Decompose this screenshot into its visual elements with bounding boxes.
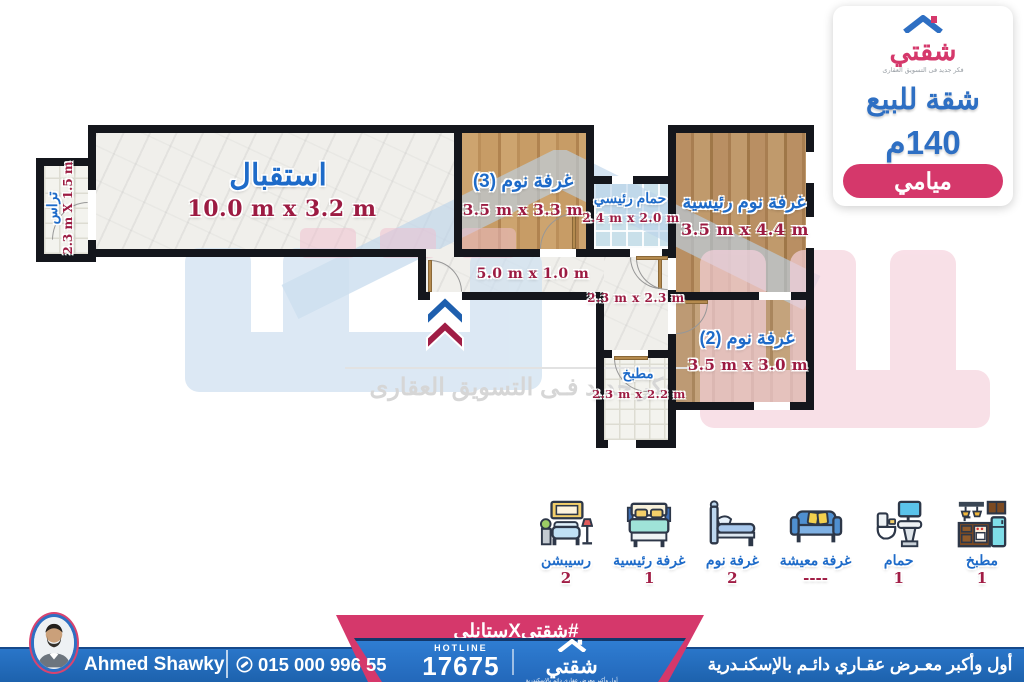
hotline-block: HOTLINE 17675 xyxy=(422,644,499,679)
room-name: غرفة نوم (2) xyxy=(699,328,794,349)
window-gap xyxy=(757,292,793,300)
poster-page: فكر جديد فـى التسويق العقارى xyxy=(0,0,1024,682)
legend-label: حمام xyxy=(861,552,937,569)
wall xyxy=(88,249,418,257)
legend-label: غرفة نوم xyxy=(694,552,770,569)
room-dims: 2.3 m X 1.5 m xyxy=(61,148,75,268)
legend-label: غرفة رئيسية xyxy=(611,552,687,569)
single-bed-icon xyxy=(705,498,759,552)
legend-count: 1 xyxy=(944,569,1020,587)
location-badge: ميامي xyxy=(843,164,1003,198)
wall xyxy=(454,125,594,133)
room-name: استقبال xyxy=(229,158,327,193)
room-dims: 2.4 m x 2.0 m xyxy=(582,211,680,225)
wall xyxy=(36,158,44,262)
divider xyxy=(512,649,514,675)
door-gap xyxy=(668,302,676,334)
wall xyxy=(454,125,462,257)
house-roof-icon xyxy=(555,639,589,652)
window-gap xyxy=(806,150,814,185)
window-gap xyxy=(610,176,635,184)
door-gap xyxy=(88,190,96,240)
room-name: مطبخ xyxy=(622,366,653,382)
entrance-arrow-icon xyxy=(426,296,464,356)
door-leaf xyxy=(636,256,668,260)
door-leaf xyxy=(428,260,432,292)
legend-count: 2 xyxy=(528,569,604,587)
room-name: حمام رئيسي xyxy=(594,190,667,207)
legend-item-bedroom: غرفة نوم 2 xyxy=(694,498,770,587)
hotline-number: 17675 xyxy=(422,653,499,679)
house-roof-icon xyxy=(900,15,946,33)
wall xyxy=(668,402,814,410)
legend-item-living-room: غرفة معيشة ---- xyxy=(778,498,854,587)
legend-item-bathroom: حمام 1 xyxy=(861,498,937,587)
info-card: شقتي فكر جديد فى التسويق العقارى شقة للب… xyxy=(833,6,1013,206)
brand-logo-tagline: فكر جديد فى التسويق العقارى xyxy=(833,66,1013,74)
door-gap xyxy=(608,440,636,448)
door-gap xyxy=(540,249,576,257)
brand-logo: شقتي فكر جديد فى التسويق العقارى xyxy=(833,6,1013,74)
room-dims: 3.5 m x 3.3 m xyxy=(463,201,583,219)
corridor-dims: 5.0 m x 1.0 m xyxy=(477,266,590,282)
legend-count: ---- xyxy=(778,569,854,587)
room-name: غرفة نوم رئيسية xyxy=(682,192,805,213)
legend-item-kitchen: مطبخ 1 xyxy=(944,498,1020,587)
divider xyxy=(226,650,228,678)
brand-logo-text: شقتي xyxy=(833,38,1013,65)
legend-item-master-room: غرفة رئيسية 1 xyxy=(611,498,687,587)
listing-area: 140م xyxy=(833,123,1013,162)
legend-item-reception: رسيبشن 2 xyxy=(528,498,604,587)
terrace-label-block: تراس 2.3 m X 1.5 m xyxy=(44,148,88,268)
agent-name: Ahmed Shawky xyxy=(84,647,224,682)
door-gap xyxy=(668,258,676,290)
phone-icon xyxy=(236,656,253,673)
legend-label: غرفة معيشة xyxy=(778,552,854,569)
room-name: تراس xyxy=(44,148,61,268)
room-name: غرفة نوم (3) xyxy=(473,170,573,193)
passage-gap xyxy=(426,249,454,257)
hotline-panel: HOTLINE 17675 شقتي أول وأكبر معرض عقاري … xyxy=(348,638,692,682)
legend-count: 1 xyxy=(611,569,687,587)
agent-avatar xyxy=(31,614,77,672)
listing-title: شقة للبيع xyxy=(833,82,1013,117)
reception-icon xyxy=(539,498,593,552)
legend-count: 2 xyxy=(694,569,770,587)
living-room-icon xyxy=(789,498,843,552)
window-gap xyxy=(752,402,792,410)
room-legend: رسيبشن 2 غرفة رئيسية 1 xyxy=(528,498,1020,587)
legend-label: مطبخ xyxy=(944,552,1020,569)
wall xyxy=(418,249,426,300)
legend-count: 1 xyxy=(861,569,937,587)
room-dims: 2.3 m x 2.2 m xyxy=(592,387,686,401)
master-bed-icon xyxy=(622,498,676,552)
room-dims: 10.0 m x 3.2 m xyxy=(187,196,376,222)
agent-phone: 015 000 996 55 xyxy=(236,647,387,682)
wall xyxy=(668,125,814,133)
legend-label: رسيبشن xyxy=(528,552,604,569)
agent-photo-icon xyxy=(34,617,74,669)
room-dims: 3.5 m x 3.0 m xyxy=(688,356,808,374)
wall xyxy=(596,292,604,448)
footer-logo: شقتي أول وأكبر معرض عقاري دائم بالإسكندر… xyxy=(526,639,618,682)
hall-dims: 2.3 m x 2.3 m xyxy=(587,291,685,305)
footer-logo-text: شقتي xyxy=(526,656,618,677)
bathroom-icon xyxy=(872,498,926,552)
footer-slogan: أول وأكبر معـرض عقـاري دائـم بالإسكنـدري… xyxy=(700,647,1020,682)
door-leaf xyxy=(614,356,648,360)
room-dims: 3.5 m x 4.4 m xyxy=(681,220,809,239)
agent-phone-number: 015 000 996 55 xyxy=(258,647,387,682)
kitchen-icon xyxy=(955,498,1009,552)
wall xyxy=(88,125,462,133)
